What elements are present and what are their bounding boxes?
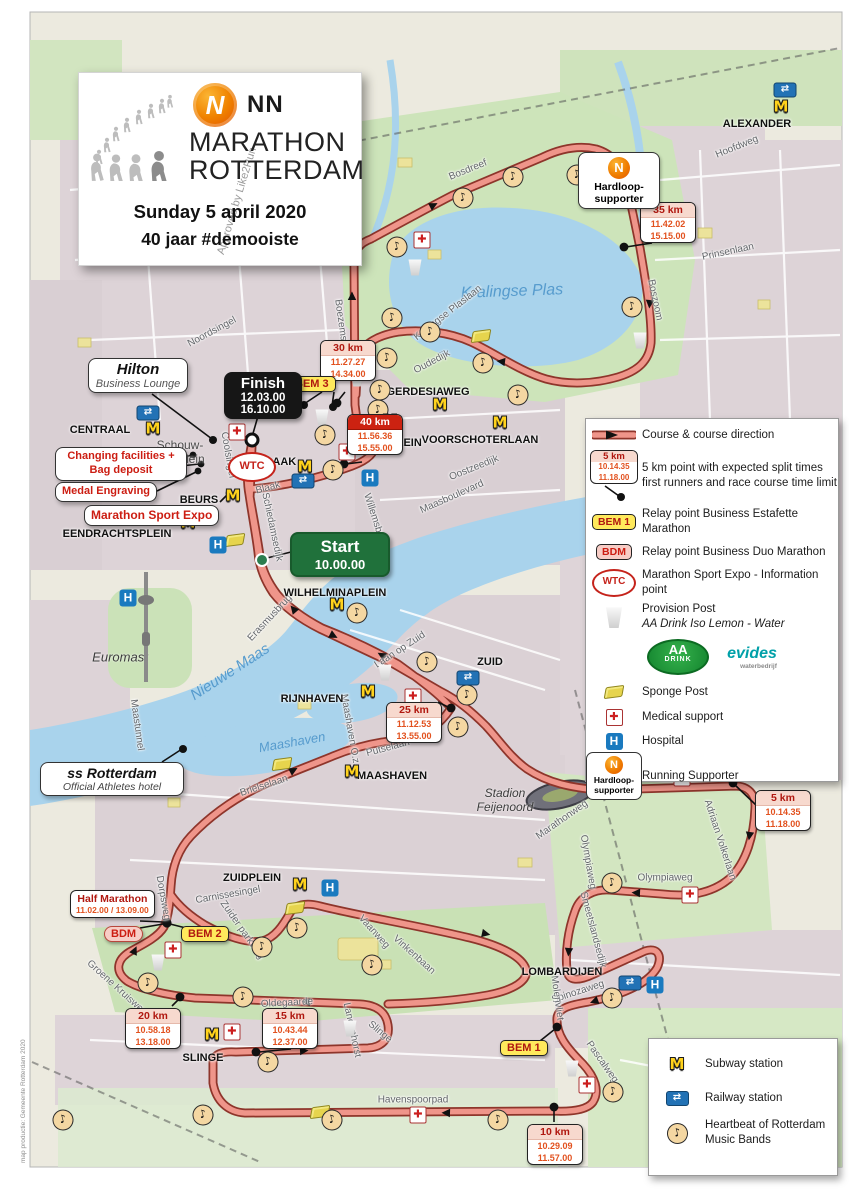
km35-split: 11.42.02 [641, 218, 695, 230]
wtc-expo-point: WTC [228, 452, 276, 482]
legend-hospital-text: Hospital [642, 734, 684, 749]
legend-subway-text: Subway station [705, 1057, 783, 1072]
running-supporter-icon: N Hardloop- supporter [586, 752, 642, 800]
km15-limit: 12.37.00 [263, 1036, 317, 1048]
metro-icon: M [670, 1057, 685, 1072]
legend-row-sponge: Sponge Post [586, 679, 838, 705]
hospital-icon: H [647, 977, 664, 994]
street-label: Havenspoorpad [378, 1095, 449, 1106]
bdm-badge-icon: BDM [596, 544, 632, 560]
railway-icon: ⇄ [774, 83, 797, 98]
stadion-line2: Feijenoord [477, 800, 534, 814]
finish-time2: 16.10.00 [231, 404, 295, 416]
hardloop-line1: Hardloop- [581, 181, 657, 193]
hilton-callout: Hilton Business Lounge [88, 358, 188, 393]
hospital-icon: H [210, 537, 227, 554]
brand-name: NN [247, 91, 284, 119]
km40-label: 40 km [348, 415, 402, 430]
event-date: Sunday 5 april 2020 [79, 201, 361, 223]
event-header-card: Approved by Like2Run N NN MARATHON ROTTE… [78, 72, 362, 266]
station-label-rijnhaven: RIJNHAVEN [281, 693, 344, 705]
nn-logo-icon: N [605, 756, 623, 774]
evides-sub: waterbedrijf [727, 663, 777, 670]
legend-provision-text2: AA Drink Iso Lemon - Water [642, 617, 785, 632]
legend-sponge-text: Sponge Post [642, 685, 708, 700]
km-point-icon: 5 km 10.14.35 11.18.00 [586, 450, 642, 502]
expo-label: Marathon Sport Expo [91, 508, 212, 523]
legend-provision-text1: Provision Post [642, 602, 785, 617]
start-dot [256, 554, 268, 566]
km25-limit: 13.55.00 [387, 730, 441, 742]
medical-icon: ✚ [165, 942, 182, 959]
legend-row-running: N Hardloop- supporter Running Supporter [586, 753, 838, 799]
aa-drink-logo: AA DRINK [647, 639, 709, 675]
medal-engraving-callout: Medal Engraving [55, 482, 157, 502]
km30-split: 11.27.27 [321, 356, 375, 368]
station-label-zuid: ZUID [477, 656, 503, 668]
railway-icon: ⇄ [292, 474, 315, 489]
railway-icon: ⇄ [619, 976, 642, 991]
stadion-line1: Stadion [477, 786, 534, 800]
legend-row-subway: M Subway station [649, 1047, 837, 1081]
relay-badge-bem2: BEM 2 [181, 926, 229, 942]
map-credit: map productie: Gemeente Rotterdam 2020 [20, 1039, 27, 1163]
legend-km-text2: first runners and race course time limit [642, 476, 837, 491]
km20-split: 10.58.18 [126, 1024, 180, 1036]
legend-row-provision: Provision Post AA Drink Iso Lemon - Wate… [586, 599, 838, 635]
medical-icon: ✚ [682, 887, 699, 904]
hilton-sub: Business Lounge [95, 378, 181, 390]
marathon-course-poster: { "header":{ "approved_by":"Approved by … [0, 0, 849, 1200]
km5-split: 10.14.35 [756, 806, 810, 818]
finish-dot [246, 434, 258, 446]
km30-label: 30 km [321, 341, 375, 356]
station-label-centraal: CENTRAAL [70, 424, 131, 436]
legend-row-railway: ⇄ Railway station [649, 1081, 837, 1115]
sponge-post-icon [604, 685, 625, 699]
sport-expo-callout: Marathon Sport Expo [84, 505, 219, 526]
legend-wtc-text: Marathon Sport Expo - Information point [642, 568, 838, 598]
legend-row-course: Course & course direction [586, 425, 838, 445]
km-point-leader [599, 484, 629, 502]
metro-icon: M [774, 100, 789, 115]
legend-bdm-text: Relay point Business Duo Marathon [642, 545, 825, 560]
hospital-icon: H [322, 880, 339, 897]
event-tagline: 40 jaar #demooiste [79, 229, 361, 250]
runners-illustration [83, 81, 175, 181]
ss-title: ss Rotterdam [47, 765, 177, 781]
legend-row-medical: ✚ Medical support [586, 705, 838, 729]
legend-row-bdm: BDM Relay point Business Duo Marathon [586, 537, 838, 567]
km10-label: 10 km [528, 1125, 582, 1140]
railway-icon: ⇄ [666, 1091, 689, 1106]
changing-facilities-callout: Changing facilities + Bag deposit [55, 447, 187, 481]
km35-limit: 15.15.00 [641, 230, 695, 242]
legend-row-wtc: WTC Marathon Sport Expo - Information po… [586, 567, 838, 599]
legend-heartbeat-text1: Heartbeat of Rotterdam [705, 1118, 825, 1133]
relay-badge-bem1: BEM 1 [500, 1040, 548, 1056]
medical-icon: ✚ [229, 424, 246, 441]
metro-icon: M [146, 422, 161, 437]
km10-split: 10.29.09 [528, 1140, 582, 1152]
railway-icon: ⇄ [137, 406, 160, 421]
station-label-alexander: ALEXANDER [723, 118, 791, 130]
event-title-line1: MARATHON [189, 127, 346, 158]
metro-icon: M [361, 685, 376, 700]
km-marker-10: 10 km 10.29.09 11.57.00 [527, 1124, 583, 1165]
km10-limit: 11.57.00 [528, 1152, 582, 1164]
half-times: 11.02.00 / 13.09.00 [76, 905, 149, 915]
legend-stations: M Subway station ⇄ Railway station ♪ Hea… [648, 1038, 838, 1176]
hardloop-line2: supporter [588, 786, 640, 796]
bem-badge-icon: BEM 1 [592, 514, 636, 530]
legend-km-label: 5 km [591, 451, 637, 462]
hospital-icon: H [362, 470, 379, 487]
hardloop-line2: supporter [581, 193, 657, 205]
km-marker-20: 20 km 10.58.18 13.18.00 [125, 1008, 181, 1049]
legend-bem-text: Relay point Business Estafette Marathon [642, 507, 838, 537]
running-supporter-badge: N Hardloop- supporter [578, 152, 660, 209]
event-title-line2: ROTTERDAM [189, 155, 365, 186]
station-label-gerdesiaweg: GERDESIAWEG [386, 386, 469, 398]
km25-split: 11.12.53 [387, 718, 441, 730]
station-label-maashaven: MAASHAVEN [357, 770, 427, 782]
medical-icon: ✚ [414, 232, 431, 249]
evides-wordmark: evides [727, 645, 777, 662]
metro-icon: M [226, 489, 241, 504]
railway-icon: ⇄ [457, 671, 480, 686]
aa-logo-bottom: DRINK [649, 656, 707, 663]
km15-split: 10.43.44 [263, 1024, 317, 1036]
ss-sub: Official Athletes hotel [47, 781, 177, 793]
legend-row-km: 5 km 10.14.35 11.18.00 5 km point with e… [586, 445, 838, 507]
finish-box: Finish 12.03.00 16.10.00 [224, 372, 302, 419]
km40-split: 11.56.36 [348, 430, 402, 442]
km-marker-25: 25 km 11.12.53 13.55.00 [386, 702, 442, 743]
legend-course-text: Course & course direction [642, 428, 774, 443]
km-marker-40: 40 km 11.56.36 15.55.00 [347, 414, 403, 455]
medal-label: Medal Engraving [62, 485, 150, 499]
metro-icon: M [493, 416, 508, 431]
medical-icon: ✚ [606, 709, 623, 726]
station-label-eendrachtsplein: EENDRACHTSPLEIN [63, 528, 172, 540]
street-label: Olympiaweg [637, 873, 692, 884]
km20-limit: 13.18.00 [126, 1036, 180, 1048]
wtc-icon: WTC [592, 569, 636, 597]
half-marathon-marker: Half Marathon 11.02.00 / 13.09.00 [70, 890, 155, 918]
course-line-icon [586, 429, 642, 441]
start-label: Start [298, 537, 382, 557]
km-marker-15: 15 km 10.43.44 12.37.00 [262, 1008, 318, 1049]
start-time: 10.00.00 [298, 557, 382, 572]
finish-time1: 12.03.00 [231, 392, 295, 404]
nn-logo-icon: N [193, 83, 237, 127]
medical-icon: ✚ [410, 1107, 427, 1124]
station-label-voorschoterlaan: VOORSCHOTERLAAN [422, 434, 539, 446]
start-box: Start 10.00.00 [290, 532, 390, 577]
legend-heartbeat-text2: Music Bands [705, 1133, 825, 1148]
euromast-tower-icon [138, 572, 154, 682]
station-label-zuidplein: ZUIDPLEIN [223, 872, 281, 884]
legend-running-text: Running Supporter [642, 769, 739, 784]
music-band-icon: ♪ [664, 1120, 690, 1146]
station-label-lombardijen: LOMBARDIJEN [522, 966, 603, 978]
metro-icon: M [433, 398, 448, 413]
provision-post-icon [606, 606, 622, 628]
medical-icon: ✚ [579, 1077, 596, 1094]
legend-km-text1: 5 km point with expected split times [642, 461, 837, 476]
legend-row-heartbeat: ♪ Heartbeat of Rotterdam Music Bands [649, 1115, 837, 1151]
changing-line2: Bag deposit [62, 464, 180, 478]
relay-badge-bdm: BDM [104, 926, 143, 942]
km40-limit: 15.55.00 [348, 442, 402, 454]
legend-km-split: 10.14.35 [591, 462, 637, 472]
legend-row-logos: AA DRINK evides waterbedrijf [586, 635, 838, 679]
place-label-stadion: Stadion Feijenoord [477, 786, 534, 814]
hospital-icon: H [120, 590, 137, 607]
metro-icon: M [345, 765, 360, 780]
changing-line1: Changing facilities + [62, 450, 180, 464]
legend-km-limit: 11.18.00 [591, 473, 637, 483]
metro-icon: M [298, 460, 313, 475]
evides-logo: evides waterbedrijf [727, 645, 777, 670]
legend-main: Course & course direction 5 km 10.14.35 … [585, 418, 839, 782]
metro-icon: M [205, 1028, 220, 1043]
hospital-icon: H [606, 733, 623, 750]
nn-logo-icon: N [608, 157, 630, 179]
km15-label: 15 km [263, 1009, 317, 1024]
km25-label: 25 km [387, 703, 441, 718]
legend-row-hospital: H Hospital [586, 729, 838, 753]
legend-row-bem: BEM 1 Relay point Business Estafette Mar… [586, 507, 838, 537]
ss-rotterdam-callout: ss Rotterdam Official Athletes hotel [40, 762, 184, 796]
km5-limit: 11.18.00 [756, 818, 810, 830]
station-label-slinge: SLINGE [183, 1052, 224, 1064]
metro-icon: M [330, 598, 345, 613]
km20-label: 20 km [126, 1009, 180, 1024]
aa-logo-top: AA [669, 642, 688, 657]
finish-label: Finish [231, 375, 295, 392]
legend-medical-text: Medical support [642, 710, 723, 725]
metro-icon: M [293, 878, 308, 893]
medical-icon: ✚ [224, 1024, 241, 1041]
legend-railway-text: Railway station [705, 1091, 782, 1106]
half-label: Half Marathon [76, 893, 149, 905]
hilton-title: Hilton [95, 361, 181, 378]
